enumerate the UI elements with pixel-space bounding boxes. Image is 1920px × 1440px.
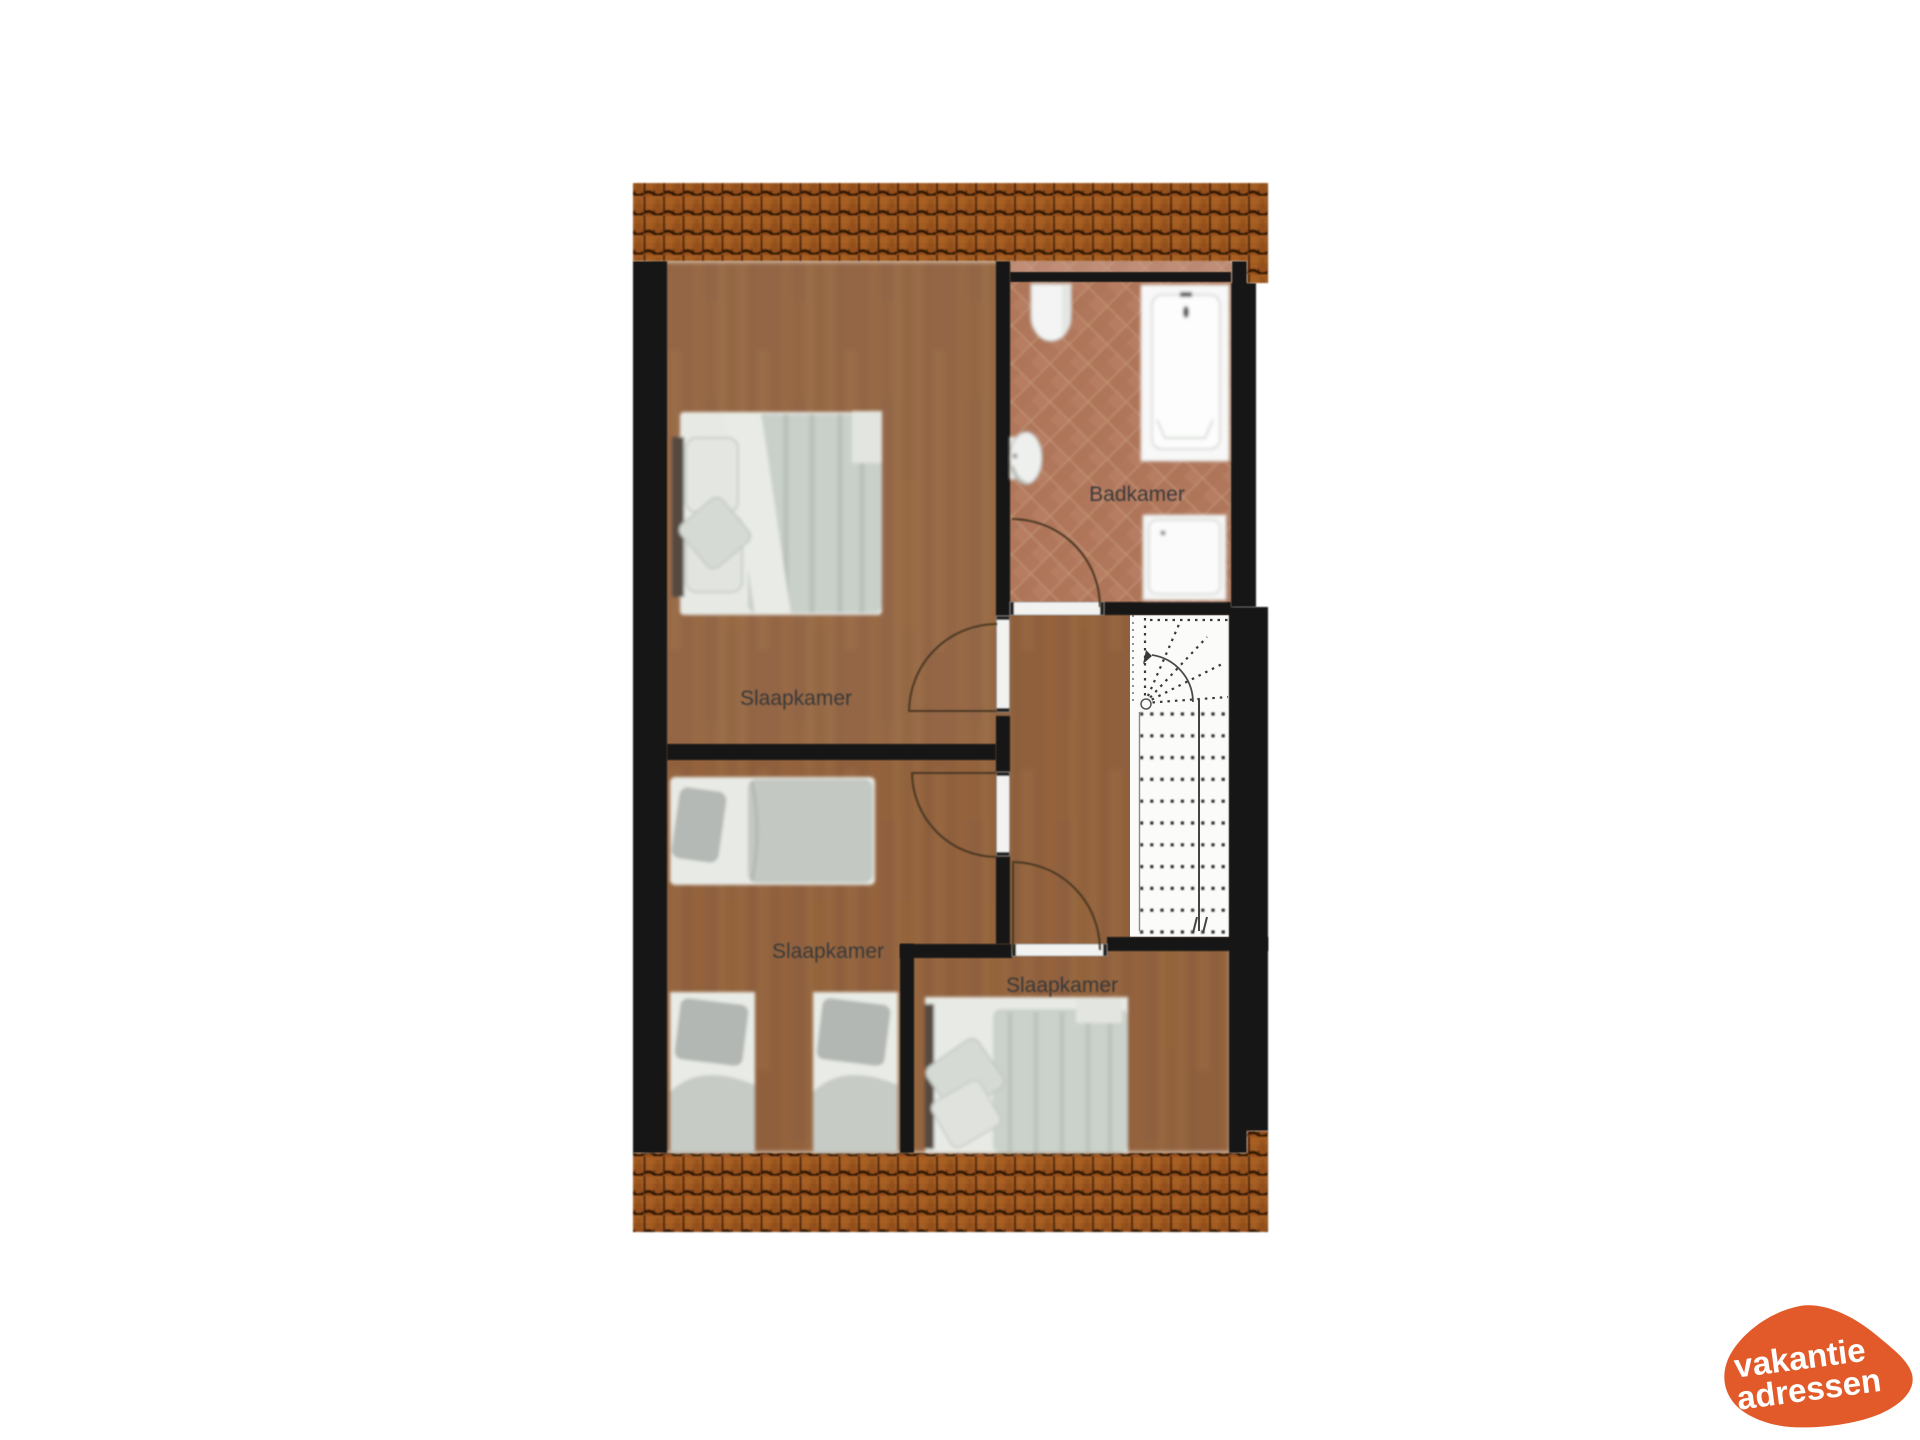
svg-text:Slaapkamer: Slaapkamer bbox=[772, 940, 884, 963]
svg-text:Badkamer: Badkamer bbox=[1089, 483, 1185, 506]
svg-text:Slaapkamer: Slaapkamer bbox=[740, 687, 852, 710]
svg-text:Slaapkamer: Slaapkamer bbox=[1006, 974, 1118, 997]
